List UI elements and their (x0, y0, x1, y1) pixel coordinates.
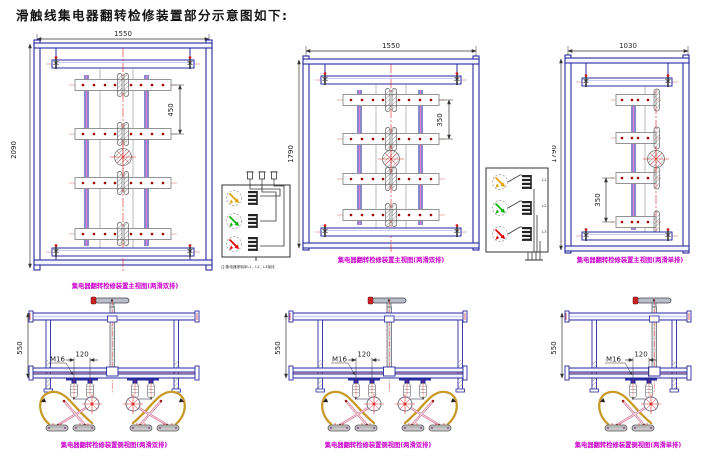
hanger-post (316, 320, 325, 392)
phase-collector-icon (227, 191, 242, 206)
pitch-dimension-350: 350 (594, 178, 614, 222)
collector-assembly (395, 378, 457, 431)
collector-bracket (654, 89, 660, 111)
width-dimension: 1550 (114, 30, 132, 38)
side-view-double-b: 550 120 M16 集电器翻转检修装置侧视图(两滑双排) (272, 294, 478, 452)
sheet-title: 滑触线集电器翻转检修装置部分示意图如下: (16, 5, 289, 24)
height-dimension: 1790 (552, 145, 558, 163)
trolley-rail (632, 95, 635, 230)
engineering-drawing-sheet: 滑触线集电器翻转检修装置部分示意图如下: (0, 0, 715, 460)
phase-collector-icon (493, 201, 508, 216)
height-dimension-550: 550 (274, 313, 286, 378)
svg-text:120: 120 (75, 351, 88, 359)
view-caption: 集电器翻转检修装置主视图(两滑双排) (71, 281, 179, 290)
detail-note: 注:集电器按相序L1、L2、L3接线 (221, 264, 275, 269)
phase-collector-icon (493, 175, 508, 190)
collector-bracket (654, 211, 660, 233)
svg-text:M16: M16 (50, 356, 65, 364)
bottom-rail (576, 228, 678, 241)
collector-plate-row (611, 95, 661, 106)
hanger-post (456, 320, 465, 392)
width-dimension: 1550 (382, 42, 400, 50)
front-view-double-a: 1550 2090 (6, 28, 218, 292)
front-view-single: 1030 1790 (552, 40, 714, 266)
collector-plate-row (611, 173, 661, 184)
wiring-detail-a: 注:集电器按相序L1、L2、L3接线 (218, 168, 298, 272)
top-beam (289, 311, 467, 322)
crank-handle-icon (368, 297, 406, 308)
svg-text:M16: M16 (606, 356, 621, 364)
wiring-detail-b: L1 L2 L3 (484, 164, 552, 264)
collector-bracket (654, 167, 660, 189)
svg-text:550: 550 (16, 341, 24, 354)
view-caption: 集电器翻转检修装置主视图(两滑单排) (576, 255, 684, 264)
crank-handle-icon (91, 297, 129, 308)
svg-text:120: 120 (357, 351, 370, 359)
collector-plate-row (611, 133, 661, 144)
height-dimension: 2090 (10, 141, 18, 159)
cable-terminal-icon (259, 172, 266, 184)
top-rail (576, 63, 678, 87)
side-view-double-a: 550 120 M16 集电器翻转检修装置侧视图(两滑双排) (16, 294, 218, 452)
svg-text:350: 350 (436, 113, 444, 126)
cable-terminal-icon (247, 172, 254, 184)
svg-text:550: 550 (550, 341, 558, 354)
pitch-dimension-450: 450 (167, 85, 184, 134)
svg-text:M16: M16 (332, 356, 347, 364)
svg-text:120: 120 (634, 351, 647, 359)
pivot-shaft-section (110, 144, 136, 170)
phase-label: L1 (542, 177, 547, 182)
hanger-post (670, 320, 679, 392)
view-caption: 集电器翻转检修装置侧视图(两滑双排) (60, 440, 168, 449)
phase-label: L2 (542, 203, 547, 208)
phase-label: L3 (542, 229, 547, 234)
width-dimension: 1030 (619, 42, 637, 50)
hanger-post (172, 320, 181, 392)
view-caption: 集电器翻转检修装置侧视图(两滑双排) (324, 440, 432, 449)
rotating-beam (289, 366, 467, 380)
phase-collector-icon (493, 227, 508, 242)
height-dimension-550: 550 (550, 313, 562, 378)
pivot-shaft-section (378, 146, 404, 172)
front-view-double-b: 1550 1790 (288, 40, 494, 266)
collector-bracket (654, 127, 660, 149)
view-caption: 集电器翻转检修装置主视图(两滑双排) (337, 255, 445, 264)
collector-assembly (322, 378, 384, 431)
crank-handle-icon (633, 297, 671, 308)
collector-plate-row (611, 217, 661, 228)
hanger-post (590, 320, 599, 392)
height-dimension: 1790 (288, 145, 295, 163)
collector-assembly (599, 378, 661, 431)
phase-collector-icon (227, 214, 242, 229)
pivot-shaft-section (643, 146, 669, 172)
svg-text:550: 550 (274, 341, 282, 354)
height-dimension-550: 550 (16, 313, 28, 378)
svg-text:450: 450 (167, 103, 175, 116)
phase-collector-icon (227, 237, 242, 252)
svg-text:350: 350 (594, 193, 602, 206)
side-view-single: 550 120 M16 集电器翻转检修装置侧视图(两滑单排) (548, 294, 714, 452)
cable-terminal-icon (271, 172, 278, 184)
view-caption: 集电器翻转检修装置侧视图(两滑单排) (574, 440, 682, 449)
